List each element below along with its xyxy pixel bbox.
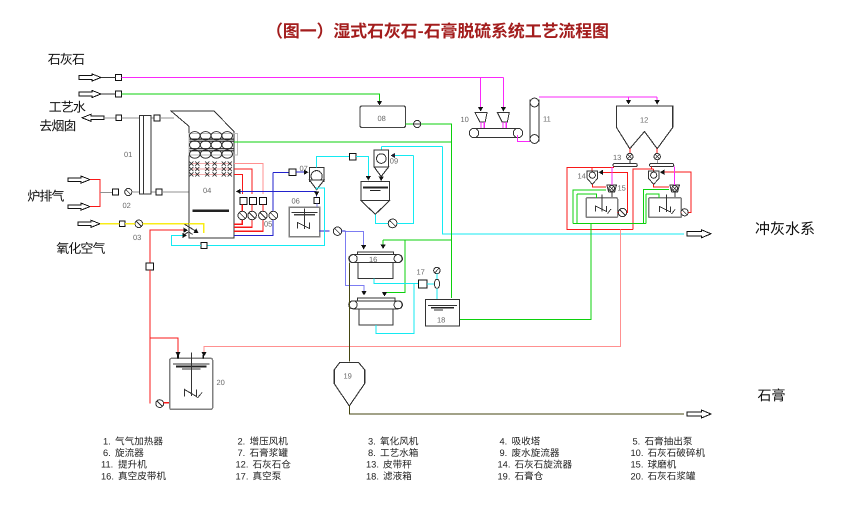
svg-text:18: 18	[437, 316, 445, 325]
svg-text:2.: 2.	[238, 437, 246, 447]
svg-text:12: 12	[640, 116, 648, 125]
svg-text:04: 04	[203, 186, 211, 195]
svg-text:7.: 7.	[238, 448, 246, 458]
svg-text:10: 10	[461, 115, 469, 124]
svg-text:08: 08	[378, 114, 386, 123]
svg-text:11.: 11.	[101, 460, 113, 470]
svg-text:20.: 20.	[631, 471, 644, 481]
svg-text:1.: 1.	[103, 437, 111, 447]
svg-text:19.: 19.	[498, 471, 511, 481]
svg-text:6.: 6.	[103, 448, 111, 458]
svg-text:10.: 10.	[631, 448, 644, 458]
svg-text:3.: 3.	[368, 437, 376, 447]
svg-text:02: 02	[123, 201, 131, 210]
svg-text:06: 06	[292, 197, 300, 206]
svg-text:17.: 17.	[236, 471, 249, 481]
svg-text:07: 07	[300, 164, 308, 173]
svg-text:16.: 16.	[101, 471, 114, 481]
svg-text:15: 15	[618, 184, 626, 193]
svg-text:12.: 12.	[236, 460, 249, 470]
svg-text:11: 11	[543, 115, 551, 124]
svg-text:8.: 8.	[368, 448, 376, 458]
svg-text:09: 09	[390, 157, 398, 166]
svg-text:13.: 13.	[366, 460, 379, 470]
svg-text:15.: 15.	[631, 460, 644, 470]
svg-text:14.: 14.	[498, 460, 511, 470]
svg-text:17: 17	[417, 268, 425, 277]
svg-text:03: 03	[133, 233, 141, 242]
svg-text:5.: 5.	[633, 437, 641, 447]
svg-text:14: 14	[578, 172, 586, 181]
svg-text:05: 05	[264, 220, 272, 229]
svg-text:9.: 9.	[500, 448, 508, 458]
svg-text:4.: 4.	[500, 437, 508, 447]
svg-text:20: 20	[217, 378, 225, 387]
svg-text:19: 19	[344, 372, 352, 381]
svg-text:01: 01	[124, 150, 132, 159]
svg-text:13: 13	[613, 153, 621, 162]
svg-text:18.: 18.	[366, 471, 379, 481]
